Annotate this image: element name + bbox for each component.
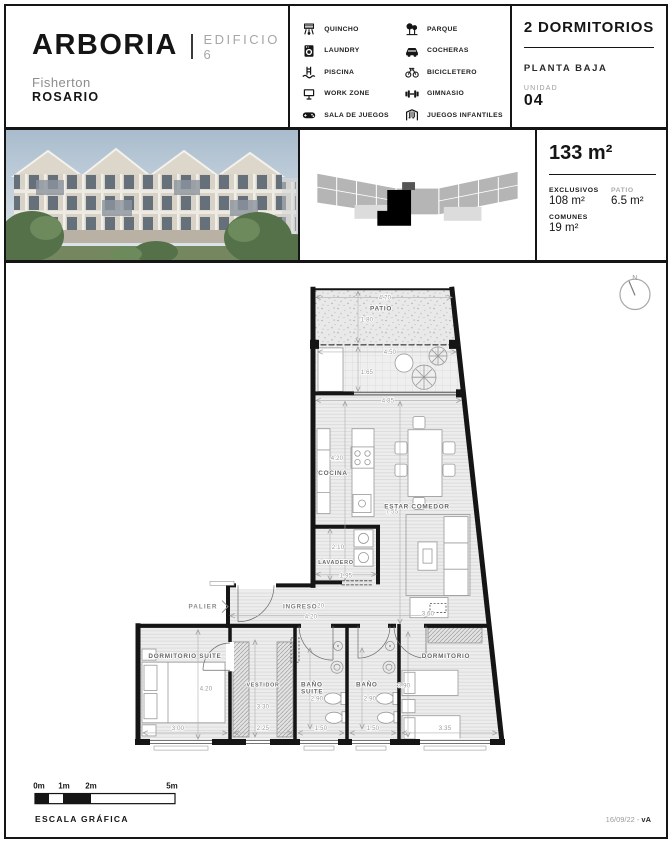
amenity-label: QUINCHO	[324, 26, 359, 33]
building-render-photo	[6, 130, 298, 260]
dim-vestidor-height: 3.30	[257, 705, 270, 711]
dim-dormitorio-width: 3.35	[439, 726, 452, 732]
amenity-bicicletero: BICICLETERO	[405, 65, 508, 79]
amenity-label: BICICLETERO	[427, 69, 477, 76]
revision-date: 16/09/22 -	[606, 815, 642, 824]
scale-bar: 0m 1m 2m 5m ESCALA GRÁFICA	[33, 781, 178, 823]
room-label-lavadero: LAVADERO	[318, 560, 354, 566]
bike-icon	[405, 65, 419, 79]
building-name: EDIFICIO 6	[204, 32, 281, 62]
playground-icon	[405, 108, 419, 122]
amenity-label: WORK ZONE	[324, 90, 369, 97]
games-icon	[302, 108, 316, 122]
amenity-label: GIMNASIO	[427, 90, 464, 97]
dim-ingreso-length: 4.20	[305, 615, 318, 621]
dim-vestidor-width: 2.25	[257, 726, 270, 732]
room-label-banio-suite-1: BAÑO	[301, 679, 323, 688]
siteplan-panel	[298, 130, 537, 260]
comunes-value: 19 m²	[549, 222, 611, 234]
floorplan-drawing: 4.70 1.80 4.50 1.65 4.85 4.20 7.55 2.10 …	[6, 263, 666, 837]
amenity-label: JUEGOS INFANTILES	[427, 112, 503, 119]
area-panel: 133 m² EXCLUSIVOS 108 m² PATIO 6.5 m² CO…	[537, 130, 666, 260]
amenity-piscina: PISCINA	[302, 65, 405, 79]
room-label-ingreso: INGRESO	[283, 604, 317, 611]
room-label-palier: PALIER	[189, 604, 218, 611]
amenity-parque: PARQUE	[405, 22, 508, 36]
area-breakdown: EXCLUSIVOS 108 m² PATIO 6.5 m² COMUNES 1…	[549, 187, 656, 241]
comunes-label: COMUNES	[549, 214, 611, 221]
scale-tick-2: 2m	[85, 781, 97, 790]
workzone-icon	[302, 87, 316, 101]
room-label-estar-comedor: ESTAR COMEDOR	[384, 504, 449, 511]
scale-tick-3: 5m	[166, 781, 178, 790]
dim-terrace-height: 1.65	[361, 370, 374, 376]
dim-living-width: 4.85	[382, 398, 395, 404]
amenities-col-right: PARQUE COCHERAS BICICLETERO GIMNASIO JUE…	[405, 22, 508, 127]
location-city: ROSARIO	[32, 90, 280, 104]
dim-banio-height: 2.90	[364, 697, 377, 703]
amenity-label: LAUNDRY	[324, 47, 359, 54]
grill-icon	[302, 22, 316, 36]
patio-value: 6.5 m²	[611, 195, 656, 207]
dim-living-width2: 3.60	[422, 612, 435, 618]
total-area: 133 m²	[549, 142, 656, 165]
amenity-juegos-infantiles: JUEGOS INFANTILES	[405, 108, 508, 122]
dim-suite-height: 4.20	[200, 686, 213, 692]
siteplan-key-diagram	[300, 129, 535, 262]
gym-icon	[405, 87, 419, 101]
divider	[524, 47, 654, 48]
laundry-icon	[302, 44, 316, 58]
amenity-workzone: WORK ZONE	[302, 87, 405, 101]
suite-furniture	[142, 649, 225, 736]
building-render-illustration	[6, 130, 298, 260]
windows	[150, 738, 490, 750]
location-neighborhood: Fisherton	[32, 75, 280, 90]
media-row: 133 m² EXCLUSIVOS 108 m² PATIO 6.5 m² CO…	[6, 130, 666, 263]
brand-logo: ARBORIA	[32, 29, 178, 62]
north-label: N	[632, 273, 637, 282]
north-compass-icon: N	[620, 273, 650, 309]
amenity-label: SALA DE JUEGOS	[324, 112, 389, 119]
amenity-gimnasio: GIMNASIO	[405, 87, 508, 101]
dim-terrace-width: 4.50	[384, 350, 397, 356]
scale-tick-0: 0m	[33, 781, 45, 790]
amenities-col-left: QUINCHO LAUNDRY PISCINA WORK ZONE SALA D…	[302, 22, 405, 127]
divider	[549, 174, 656, 175]
plan-sheet: ARBORIA EDIFICIO 6 Fisherton ROSARIO QUI…	[4, 4, 668, 839]
amenity-cocheras: COCHERAS	[405, 44, 508, 58]
exclusivos-label: EXCLUSIVOS	[549, 187, 611, 194]
scale-tick-1: 1m	[58, 781, 70, 790]
amenity-label: PARQUE	[427, 26, 458, 33]
dim-lavadero-height: 2.10	[332, 545, 345, 551]
room-label-dormitorio: DORMITORIO	[422, 653, 470, 660]
room-label-patio: PATIO	[370, 305, 392, 312]
brand-line: ARBORIA EDIFICIO 6	[32, 28, 280, 62]
exclusivos-value: 108 m²	[549, 195, 611, 207]
planter	[318, 348, 343, 391]
room-label-cocina: COCINA	[318, 470, 347, 477]
amenity-laundry: LAUNDRY	[302, 44, 405, 58]
brand-panel: ARBORIA EDIFICIO 6 Fisherton ROSARIO	[6, 6, 288, 127]
floorplan-section: 4.70 1.80 4.50 1.65 4.85 4.20 7.55 2.10 …	[6, 263, 666, 837]
unit-number: 04	[524, 92, 654, 110]
amenity-quincho: QUINCHO	[302, 22, 405, 36]
scale-caption: ESCALA GRÁFICA	[35, 814, 129, 824]
amenity-label: COCHERAS	[427, 47, 469, 54]
dim-dormitorio-height: 3.90	[398, 683, 411, 689]
room-label-dormitorio-suite: DORMITORIO SUITE	[148, 653, 221, 660]
amenity-sala-de-juegos: SALA DE JUEGOS	[302, 108, 405, 122]
terrace-table	[395, 354, 413, 372]
dim-banio-suite-width: 1.50	[315, 726, 328, 732]
brand-divider	[191, 34, 193, 59]
room-label-vestidor: VESTIDOR	[246, 682, 279, 688]
revision-version: vA	[641, 815, 651, 824]
dim-cocina-height: 4.20	[331, 456, 344, 462]
dim-patio-height: 1.80	[361, 318, 374, 324]
closet-left	[233, 642, 249, 737]
amenity-label: PISCINA	[324, 69, 354, 76]
unit-number-label: UNIDAD	[524, 85, 654, 92]
dim-patio-width: 4.70	[379, 295, 392, 301]
car-icon	[405, 44, 419, 58]
unit-floor: PLANTA BAJA	[524, 63, 654, 74]
header-row: ARBORIA EDIFICIO 6 Fisherton ROSARIO QUI…	[6, 6, 666, 130]
room-label-banio-suite-2: SUITE	[301, 688, 323, 695]
dim-banio-suite-height: 2.90	[311, 697, 324, 703]
patio-label: PATIO	[611, 187, 656, 194]
park-icon	[405, 22, 419, 36]
dim-suite-width: 3.00	[172, 726, 185, 732]
closet-right	[277, 642, 293, 737]
unit-type: 2 DORMITORIOS	[524, 19, 654, 36]
unit-info-panel: 2 DORMITORIOS PLANTA BAJA UNIDAD 04	[512, 6, 666, 127]
room-label-banio: BAÑO	[356, 679, 378, 688]
pool-icon	[302, 65, 316, 79]
dim-lavadero-width: 1.95	[340, 573, 353, 579]
revision-stamp: 16/09/22 - vA	[606, 815, 652, 824]
dim-banio-width: 1.50	[367, 726, 380, 732]
amenities-panel: QUINCHO LAUNDRY PISCINA WORK ZONE SALA D…	[288, 6, 512, 127]
